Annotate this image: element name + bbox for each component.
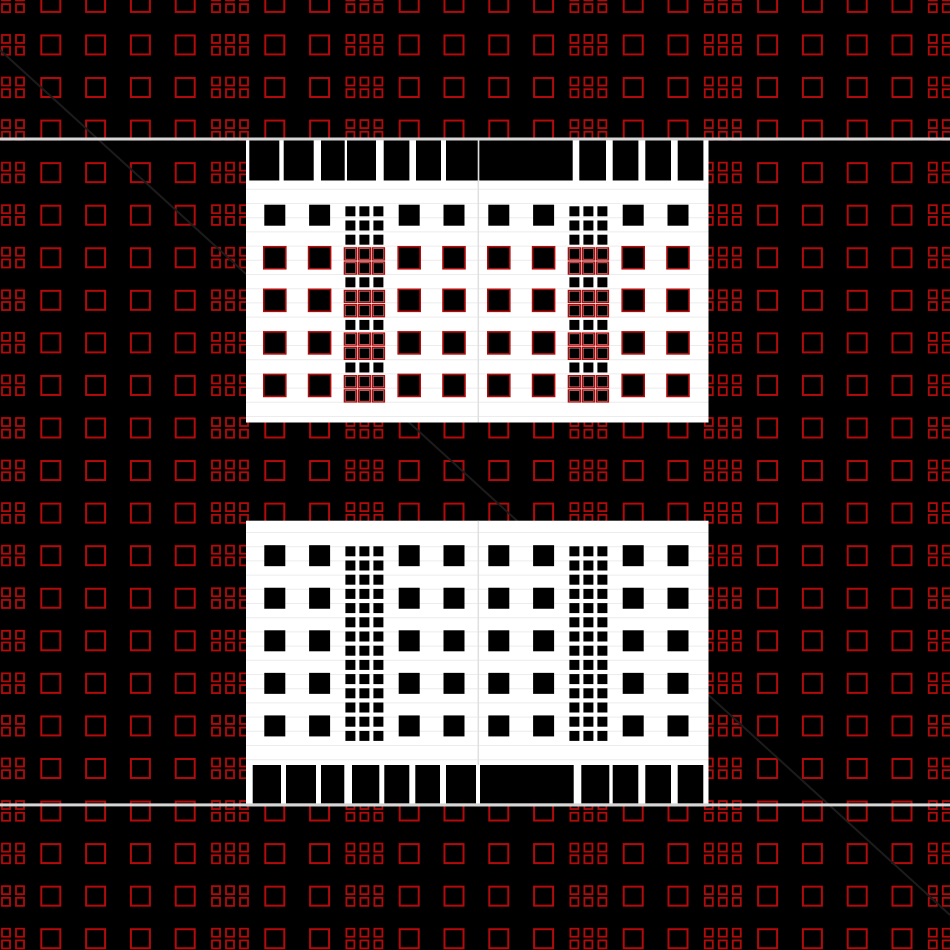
panel-dot-square — [583, 320, 593, 330]
panel-dot-square — [373, 731, 383, 741]
panel-dot-square — [345, 206, 355, 216]
panel-black-square — [444, 630, 465, 651]
panel-dot-square — [373, 363, 383, 373]
panel-black-square — [399, 332, 420, 353]
panel-dot-square — [583, 731, 593, 741]
panel-dot-square — [569, 589, 579, 599]
panel-dot-square — [345, 603, 355, 613]
panel-dot-square — [597, 561, 607, 571]
panel-dot-square — [373, 674, 383, 684]
panel-dot-square — [345, 660, 355, 670]
panel-dot-square — [583, 546, 593, 556]
panel-dot-square — [345, 688, 355, 698]
panel-dot-square — [345, 249, 355, 259]
panel-dot-square — [359, 348, 369, 358]
panel-dot-square — [359, 334, 369, 344]
panel-black-square — [623, 290, 644, 311]
panel-dot-square — [569, 320, 579, 330]
panel-dot-square — [359, 377, 369, 387]
panel-black-square — [309, 247, 330, 268]
panel-dot-square — [359, 561, 369, 571]
panel-dot-square — [597, 646, 607, 656]
panel-black-square — [668, 588, 689, 609]
panel-black-square — [668, 332, 689, 353]
panel-black-square — [533, 375, 554, 396]
panel-black-square — [399, 290, 420, 311]
art-svg — [0, 0, 950, 950]
panel-black-square — [264, 332, 285, 353]
panel-bar — [284, 141, 314, 181]
panel-dot-square — [569, 263, 579, 273]
panel-black-square — [533, 630, 554, 651]
panel-dot-square — [569, 617, 579, 627]
bottom-panel — [246, 521, 709, 807]
panel-dot-square — [583, 206, 593, 216]
panel-bar — [581, 765, 609, 803]
panel-black-square — [444, 673, 465, 694]
panel-black-square — [623, 630, 644, 651]
panel-dot-square — [359, 306, 369, 316]
panel-dot-square — [583, 377, 593, 387]
panel-dot-square — [373, 589, 383, 599]
panel-black-square — [264, 545, 285, 566]
panel-dot-square — [597, 249, 607, 259]
panel-dot-square — [569, 292, 579, 302]
panel-black-square — [309, 630, 330, 651]
panel-bar — [446, 765, 476, 803]
panel-dot-square — [569, 546, 579, 556]
panel-bar — [480, 765, 574, 803]
panel-dot-square — [373, 575, 383, 585]
panel-dot-square — [597, 660, 607, 670]
panel-black-square — [623, 588, 644, 609]
panel-dot-square — [373, 603, 383, 613]
panel-dot-square — [583, 617, 593, 627]
panel-dot-square — [597, 334, 607, 344]
panel-dot-square — [583, 363, 593, 373]
panel-dot-square — [345, 546, 355, 556]
panel-black-square — [264, 375, 285, 396]
panel-dot-square — [373, 206, 383, 216]
panel-bar — [479, 141, 572, 181]
panel-dot-square — [569, 391, 579, 401]
panel-dot-square — [583, 391, 593, 401]
panel-black-square — [623, 375, 644, 396]
panel-black-square — [533, 205, 554, 226]
panel-dot-square — [345, 263, 355, 273]
panel-black-square — [444, 332, 465, 353]
panel-dot-square — [359, 632, 369, 642]
panel-bar — [613, 765, 639, 803]
panel-dot-square — [345, 646, 355, 656]
panel-dot-square — [583, 348, 593, 358]
panel-dot-square — [597, 292, 607, 302]
panel-dot-square — [583, 688, 593, 698]
panel-black-square — [309, 332, 330, 353]
panel-dot-square — [373, 320, 383, 330]
panel-dot-square — [345, 363, 355, 373]
panel-black-square — [264, 290, 285, 311]
panel-black-square — [444, 588, 465, 609]
panel-dot-square — [597, 717, 607, 727]
panel-black-square — [533, 332, 554, 353]
panel-black-square — [488, 332, 509, 353]
panel-dot-square — [569, 717, 579, 727]
panel-dot-square — [359, 717, 369, 727]
panel-dot-square — [359, 235, 369, 245]
panel-dot-square — [597, 363, 607, 373]
panel-black-square — [399, 375, 420, 396]
panel-dot-square — [345, 561, 355, 571]
panel-black-square — [533, 715, 554, 736]
panel-dot-square — [583, 603, 593, 613]
panel-dot-square — [583, 334, 593, 344]
panel-dot-square — [359, 391, 369, 401]
panel-dot-square — [359, 674, 369, 684]
panel-dot-square — [583, 221, 593, 231]
panel-dot-square — [345, 235, 355, 245]
panel-dot-square — [373, 221, 383, 231]
panel-dot-square — [569, 206, 579, 216]
panel-black-square — [399, 545, 420, 566]
panel-dot-square — [345, 334, 355, 344]
panel-dot-square — [345, 589, 355, 599]
panel-dot-square — [373, 717, 383, 727]
panel-dot-square — [569, 674, 579, 684]
panel-dot-square — [569, 334, 579, 344]
panel-dot-square — [569, 660, 579, 670]
panel-dot-square — [597, 703, 607, 713]
panel-dot-square — [569, 306, 579, 316]
panel-black-square — [623, 545, 644, 566]
panel-dot-square — [569, 221, 579, 231]
panel-dot-square — [359, 221, 369, 231]
panel-black-square — [623, 247, 644, 268]
panel-black-square — [623, 332, 644, 353]
panel-dot-square — [569, 731, 579, 741]
panel-black-square — [668, 673, 689, 694]
panel-dot-square — [569, 646, 579, 656]
panel-dot-square — [373, 263, 383, 273]
panel-dot-square — [597, 221, 607, 231]
panel-bar — [645, 141, 671, 181]
panel-dot-square — [597, 632, 607, 642]
panel-dot-square — [373, 617, 383, 627]
divider-line — [0, 803, 950, 806]
panel-black-square — [399, 205, 420, 226]
panel-dot-square — [359, 249, 369, 259]
panel-bar — [384, 765, 409, 803]
panel-dot-square — [373, 391, 383, 401]
panel-dot-square — [373, 632, 383, 642]
panel-dot-square — [597, 263, 607, 273]
panel-black-square — [309, 205, 330, 226]
panel-dot-square — [569, 363, 579, 373]
panel-black-square — [623, 673, 644, 694]
panel-black-square — [309, 715, 330, 736]
panel-dot-square — [597, 391, 607, 401]
panel-dot-square — [359, 603, 369, 613]
divider-line — [0, 138, 950, 141]
panel-dot-square — [583, 660, 593, 670]
panel-dot-square — [373, 348, 383, 358]
panel-dot-square — [359, 703, 369, 713]
panel-dot-square — [569, 377, 579, 387]
panel-bar — [352, 765, 379, 803]
panel-dot-square — [373, 235, 383, 245]
panel-dot-square — [345, 377, 355, 387]
panel-dot-square — [345, 703, 355, 713]
panel-dot-square — [373, 292, 383, 302]
panel-dot-square — [569, 561, 579, 571]
panel-black-square — [668, 715, 689, 736]
panel-bar — [347, 141, 376, 181]
panel-black-square — [399, 247, 420, 268]
panel-dot-square — [345, 632, 355, 642]
panel-black-square — [309, 588, 330, 609]
panel-dot-square — [597, 575, 607, 585]
panel-black-square — [309, 673, 330, 694]
panel-dot-square — [597, 320, 607, 330]
panel-black-square — [399, 588, 420, 609]
panel-bar — [321, 765, 344, 803]
panel-dot-square — [583, 646, 593, 656]
panel-bar — [613, 141, 639, 181]
panel-dot-square — [345, 391, 355, 401]
panel-dot-square — [597, 674, 607, 684]
panel-dot-square — [345, 306, 355, 316]
panel-bar — [678, 141, 704, 181]
panel-dot-square — [583, 703, 593, 713]
panel-bar — [321, 141, 345, 181]
panel-dot-square — [569, 575, 579, 585]
panel-dot-square — [583, 235, 593, 245]
panel-dot-square — [359, 617, 369, 627]
panel-black-square — [488, 545, 509, 566]
panel-dot-square — [583, 277, 593, 287]
panel-black-square — [444, 247, 465, 268]
panel-black-square — [668, 375, 689, 396]
panel-dot-square — [569, 703, 579, 713]
panel-dot-square — [597, 235, 607, 245]
panel-black-square — [264, 673, 285, 694]
panel-dot-square — [597, 731, 607, 741]
panel-dot-square — [359, 292, 369, 302]
panel-dot-square — [359, 546, 369, 556]
panel-bar — [416, 141, 441, 181]
panel-dot-square — [373, 688, 383, 698]
panel-dot-square — [597, 603, 607, 613]
panel-black-square — [264, 205, 285, 226]
panel-dot-square — [583, 306, 593, 316]
panel-dot-square — [569, 603, 579, 613]
panel-dot-square — [345, 717, 355, 727]
panel-black-square — [309, 290, 330, 311]
panel-black-square — [533, 290, 554, 311]
panel-dot-square — [345, 348, 355, 358]
panel-bar — [249, 141, 279, 181]
panel-black-square — [264, 247, 285, 268]
panel-bar — [253, 765, 281, 803]
panel-dot-square — [345, 292, 355, 302]
panel-dot-square — [359, 688, 369, 698]
panel-dot-square — [373, 646, 383, 656]
panel-dot-square — [583, 717, 593, 727]
panel-dot-square — [345, 221, 355, 231]
panel-dot-square — [359, 320, 369, 330]
panel-black-square — [264, 630, 285, 651]
panel-dot-square — [359, 263, 369, 273]
panel-dot-square — [569, 277, 579, 287]
panel-dot-square — [359, 206, 369, 216]
panel-dot-square — [569, 235, 579, 245]
panel-black-square — [444, 205, 465, 226]
panel-dot-square — [345, 320, 355, 330]
panel-black-square — [533, 545, 554, 566]
panel-bar — [645, 765, 671, 803]
panel-dot-square — [597, 277, 607, 287]
panel-black-square — [444, 715, 465, 736]
panel-dot-square — [597, 306, 607, 316]
panel-black-square — [488, 715, 509, 736]
panel-dot-square — [569, 632, 579, 642]
panel-black-square — [623, 715, 644, 736]
panel-black-square — [668, 247, 689, 268]
panel-dot-square — [597, 206, 607, 216]
panel-dot-square — [597, 589, 607, 599]
panel-bar — [286, 765, 316, 803]
panel-dot-square — [373, 306, 383, 316]
panel-black-square — [264, 715, 285, 736]
panel-black-square — [399, 673, 420, 694]
panel-black-square — [444, 290, 465, 311]
panel-dot-square — [359, 363, 369, 373]
panel-bar — [579, 141, 606, 181]
panel-black-square — [399, 715, 420, 736]
panel-black-square — [668, 290, 689, 311]
panel-dot-square — [345, 277, 355, 287]
panel-black-square — [264, 588, 285, 609]
panel-dot-square — [345, 617, 355, 627]
panel-bar — [415, 765, 440, 803]
panel-dot-square — [597, 377, 607, 387]
panel-black-square — [488, 290, 509, 311]
panel-dot-square — [569, 348, 579, 358]
panel-dot-square — [373, 249, 383, 259]
panel-dot-square — [583, 561, 593, 571]
panel-black-square — [623, 205, 644, 226]
panel-black-square — [444, 375, 465, 396]
panel-bar — [446, 141, 478, 181]
panel-dot-square — [569, 249, 579, 259]
panel-dot-square — [597, 546, 607, 556]
panel-dot-square — [359, 575, 369, 585]
panel-black-square — [488, 588, 509, 609]
panel-dot-square — [373, 377, 383, 387]
panel-black-square — [533, 247, 554, 268]
panel-black-square — [668, 545, 689, 566]
panel-dot-square — [597, 688, 607, 698]
panel-dot-square — [359, 646, 369, 656]
panel-black-square — [533, 673, 554, 694]
panel-dot-square — [373, 660, 383, 670]
panel-black-square — [488, 205, 509, 226]
panel-black-square — [488, 375, 509, 396]
panel-black-square — [309, 545, 330, 566]
panel-dot-square — [345, 731, 355, 741]
panel-dot-square — [569, 688, 579, 698]
panel-black-square — [488, 673, 509, 694]
panel-black-square — [488, 630, 509, 651]
panel-black-square — [533, 588, 554, 609]
panel-dot-square — [583, 674, 593, 684]
panel-dot-square — [373, 703, 383, 713]
panel-dot-square — [583, 589, 593, 599]
panel-dot-square — [373, 334, 383, 344]
panel-dot-square — [373, 546, 383, 556]
panel-black-square — [668, 205, 689, 226]
panel-dot-square — [345, 575, 355, 585]
panel-dot-square — [583, 263, 593, 273]
panel-dot-square — [583, 292, 593, 302]
panel-dot-square — [359, 660, 369, 670]
panel-dot-square — [359, 277, 369, 287]
panel-dot-square — [373, 277, 383, 287]
panel-dot-square — [597, 348, 607, 358]
panel-dot-square — [359, 589, 369, 599]
panel-dot-square — [345, 674, 355, 684]
panel-dot-square — [583, 575, 593, 585]
panel-black-square — [668, 630, 689, 651]
panel-dot-square — [359, 731, 369, 741]
panel-black-square — [444, 545, 465, 566]
panel-bar — [384, 141, 410, 181]
panel-black-square — [309, 375, 330, 396]
panel-dot-square — [583, 632, 593, 642]
panel-black-square — [399, 630, 420, 651]
panel-dot-square — [373, 561, 383, 571]
generative-art-canvas — [0, 0, 950, 950]
panel-dot-square — [583, 249, 593, 259]
panel-black-square — [488, 247, 509, 268]
panel-dot-square — [597, 617, 607, 627]
panel-bar — [678, 765, 704, 803]
top-panel — [246, 138, 709, 423]
